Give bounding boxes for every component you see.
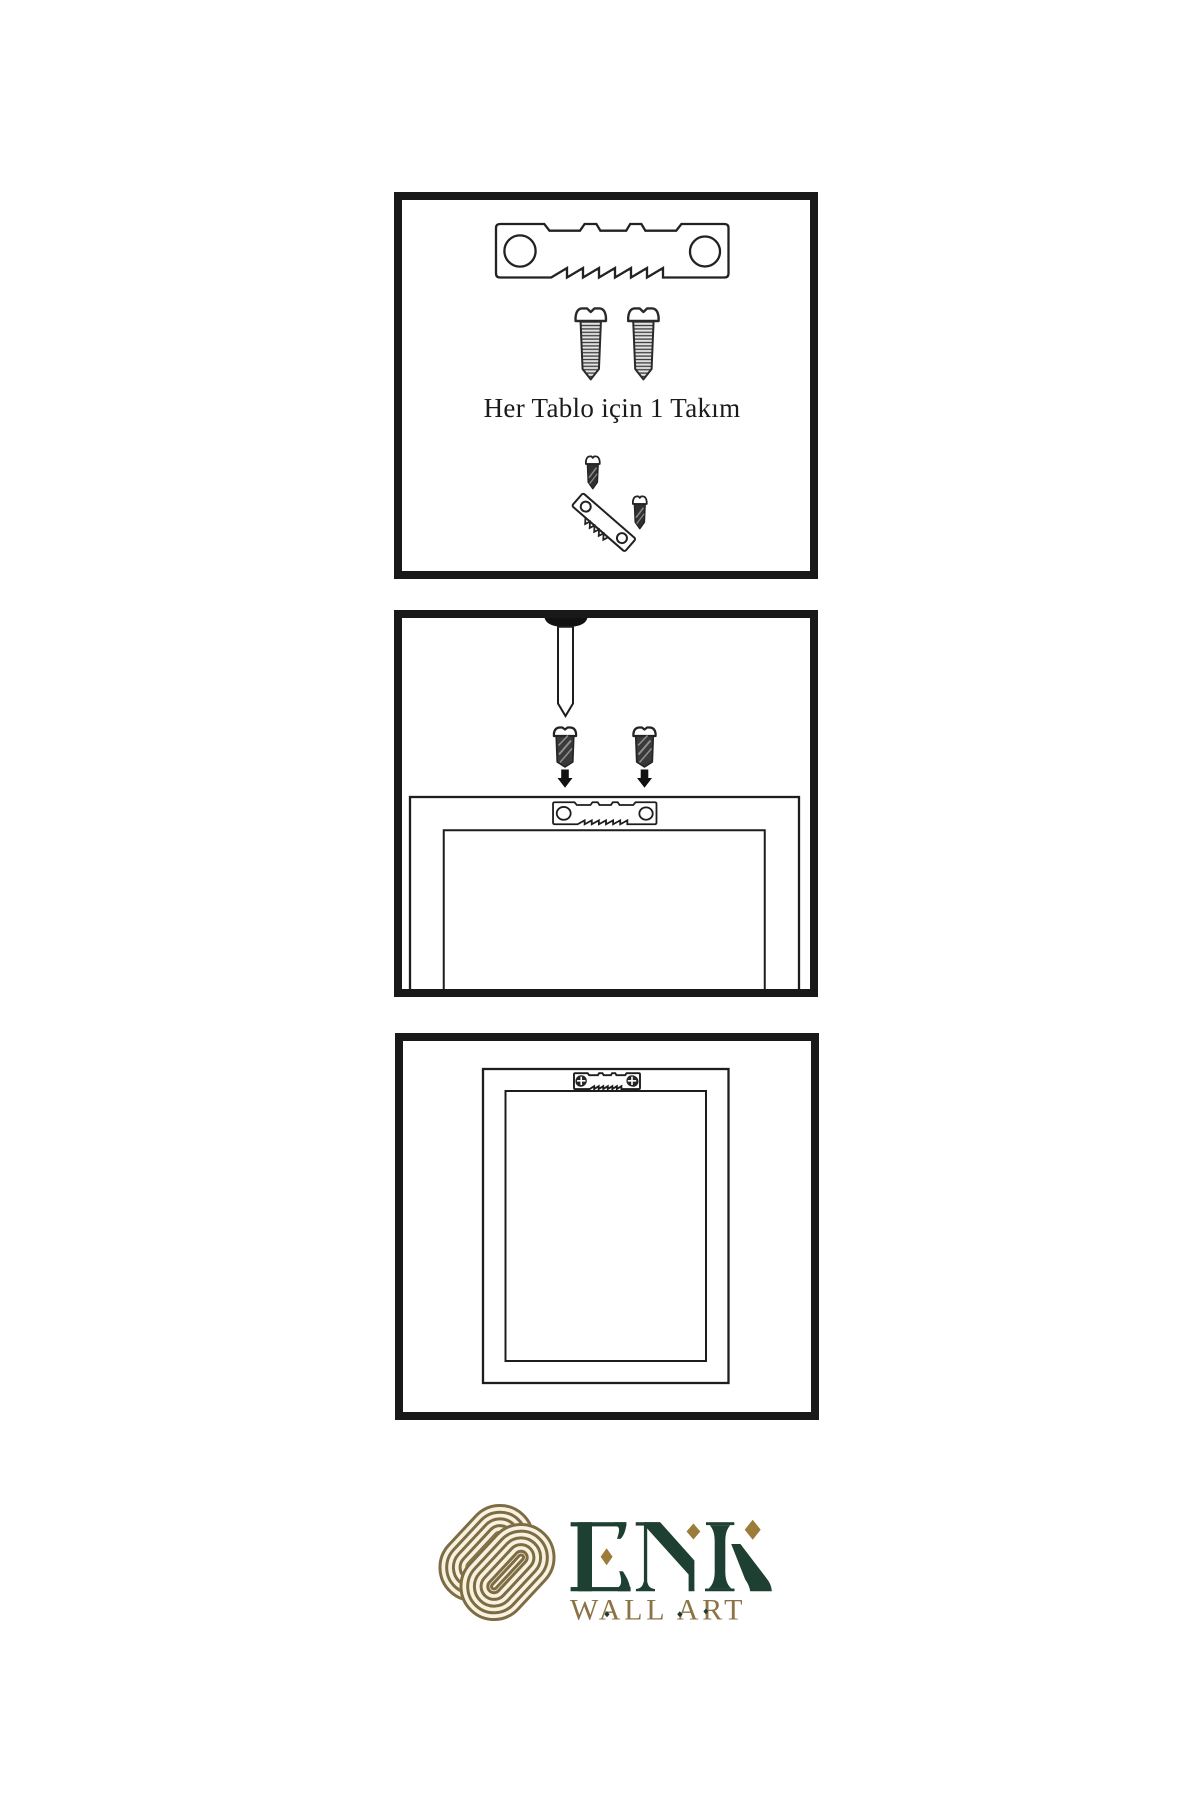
svg-text:WALL ART: WALL ART: [570, 1594, 746, 1627]
